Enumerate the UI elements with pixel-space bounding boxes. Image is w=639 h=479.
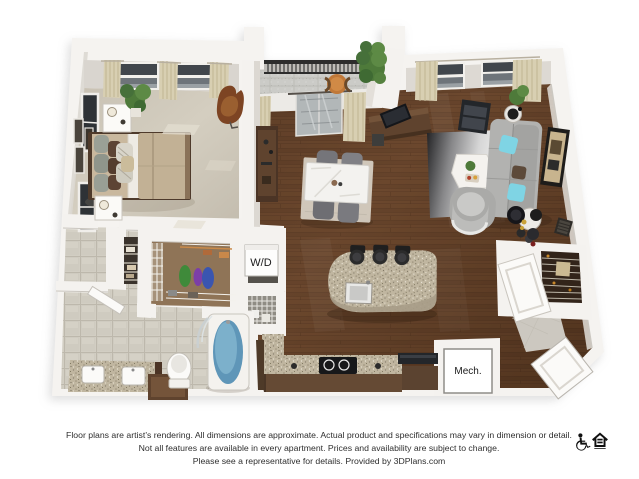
svg-text:W/D: W/D: [250, 257, 271, 269]
svg-text:Floor plans are artist’s rende: Floor plans are artist’s rendering. All …: [66, 430, 572, 440]
svg-text:Mech.: Mech.: [454, 366, 481, 377]
svg-text:Not all features are available: Not all features are available in every …: [139, 443, 500, 453]
svg-text:Please see a representative fo: Please see a representative for details.…: [193, 456, 446, 466]
